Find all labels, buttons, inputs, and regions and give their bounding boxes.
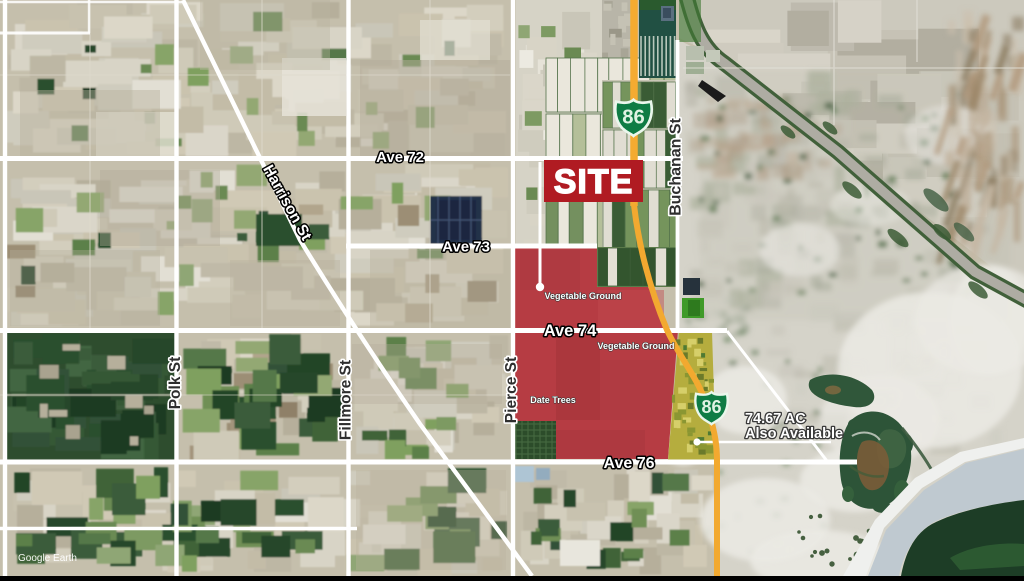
svg-text:SITE: SITE: [554, 163, 634, 201]
svg-text:Fillmore St: Fillmore St: [338, 360, 355, 440]
svg-text:Vegetable Ground: Vegetable Ground: [544, 291, 621, 301]
svg-text:Ave 74: Ave 74: [544, 322, 597, 340]
svg-text:86: 86: [622, 106, 645, 128]
svg-text:Ave 72: Ave 72: [376, 149, 424, 166]
svg-text:Ave 76: Ave 76: [604, 455, 655, 472]
svg-text:Google Earth: Google Earth: [18, 553, 77, 564]
svg-text:86: 86: [701, 397, 721, 417]
svg-text:Vegetable Ground: Vegetable Ground: [597, 341, 674, 351]
svg-text:Buchanan St: Buchanan St: [668, 117, 685, 215]
svg-text:Date Trees: Date Trees: [530, 395, 576, 405]
svg-text:74.67 AC: 74.67 AC: [745, 411, 806, 427]
svg-text:Pierce St: Pierce St: [503, 357, 520, 423]
svg-text:Polk St: Polk St: [167, 357, 184, 410]
svg-text:Also Available: Also Available: [745, 426, 843, 442]
svg-text:Ave 73: Ave 73: [442, 239, 490, 256]
